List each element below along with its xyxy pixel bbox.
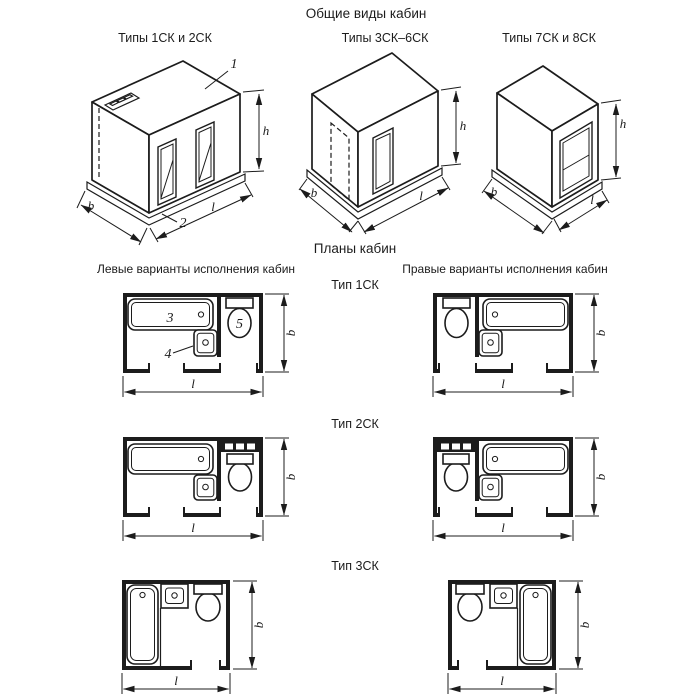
door [158, 139, 176, 205]
width-label: b [251, 621, 266, 628]
room [433, 437, 573, 517]
right-column-header: Правые варианты исполнения кабин [402, 262, 608, 276]
general-view-label-types-7-8: Типы 7СК и 8СК [502, 31, 596, 45]
width-dimension: b [575, 438, 608, 516]
plan-type-label-2: Тип 2СК [331, 417, 379, 431]
width-label: b [283, 329, 298, 336]
general-view-label-types-1-2: Типы 1СК и 2СК [118, 31, 212, 45]
length-label: l [500, 673, 504, 688]
room [122, 580, 230, 670]
length-label: l [174, 673, 178, 688]
plan-type3-right: b l [445, 577, 605, 699]
plan-type1-right: b l [430, 290, 620, 402]
plan-type2-right: b l [430, 434, 620, 546]
height-dimension: h [441, 87, 466, 166]
callout-3: 3 [166, 311, 174, 326]
length-dimension: l [433, 376, 573, 397]
width-label: b [593, 473, 608, 480]
cabin-body [87, 61, 245, 225]
callout-washbasin: 4 [165, 346, 194, 362]
callout-toilet: 5 [236, 317, 243, 332]
height-label: h [460, 118, 467, 133]
page-title: Общие виды кабин [306, 6, 427, 21]
width-label: b [491, 184, 498, 199]
height-label: h [620, 116, 627, 131]
length-label: l [501, 520, 505, 535]
plan-type-label-1: Тип 1СК [331, 278, 379, 292]
room [448, 580, 556, 670]
length-label: l [501, 376, 505, 391]
door [373, 128, 393, 194]
plan-type3-left: b l [119, 577, 279, 699]
width-dimension: b [265, 438, 298, 516]
iso-view-types-1-2: h b l 1 2 [55, 50, 275, 246]
width-dimension: b [575, 294, 608, 372]
length-label: l [191, 520, 195, 535]
room [433, 293, 573, 373]
callout-2: 2 [180, 216, 187, 231]
length-dimension: l [448, 673, 556, 694]
callout-4: 4 [165, 347, 172, 362]
length-label: l [590, 192, 594, 207]
height-label: h [263, 123, 270, 138]
left-column-header: Левые варианты исполнения кабин [97, 262, 295, 276]
length-label: l [419, 188, 423, 203]
length-dimension: l [122, 673, 230, 694]
plan-type2-left: b l [120, 434, 310, 546]
width-dimension: b [559, 581, 592, 669]
general-view-label-types-3-6: Типы 3СК–6СК [342, 31, 429, 45]
width-dimension: b [265, 294, 298, 372]
callout-1: 1 [231, 57, 238, 72]
length-dimension: l [433, 520, 573, 541]
width-label: b [593, 329, 608, 336]
iso-view-types-7-8: h b l [470, 50, 645, 246]
room [123, 293, 263, 373]
length-label: l [211, 199, 215, 214]
door [196, 122, 214, 188]
callout-bathtub: 3 [166, 311, 174, 326]
callout-5: 5 [236, 317, 243, 332]
iso-view-types-3-6: h b l [295, 50, 475, 246]
cabin-body [492, 66, 602, 219]
height-dimension: h [601, 100, 626, 180]
room [123, 437, 263, 517]
plan-type-label-3: Тип 3СК [331, 559, 379, 573]
width-label: b [311, 185, 318, 200]
length-label: l [191, 376, 195, 391]
width-label: b [577, 621, 592, 628]
drawing-page: Общие виды кабин Типы 1СК и 2СК Типы 3СК… [0, 0, 700, 700]
height-dimension: h [243, 90, 269, 172]
plan-type1-left: 3 4 5 b l [120, 290, 310, 402]
width-label: b [283, 473, 298, 480]
width-dimension: b [233, 581, 266, 669]
length-dimension: l [123, 376, 263, 397]
plans-title: Планы кабин [314, 241, 396, 256]
length-dimension: l [123, 520, 263, 541]
width-label: b [88, 198, 95, 213]
